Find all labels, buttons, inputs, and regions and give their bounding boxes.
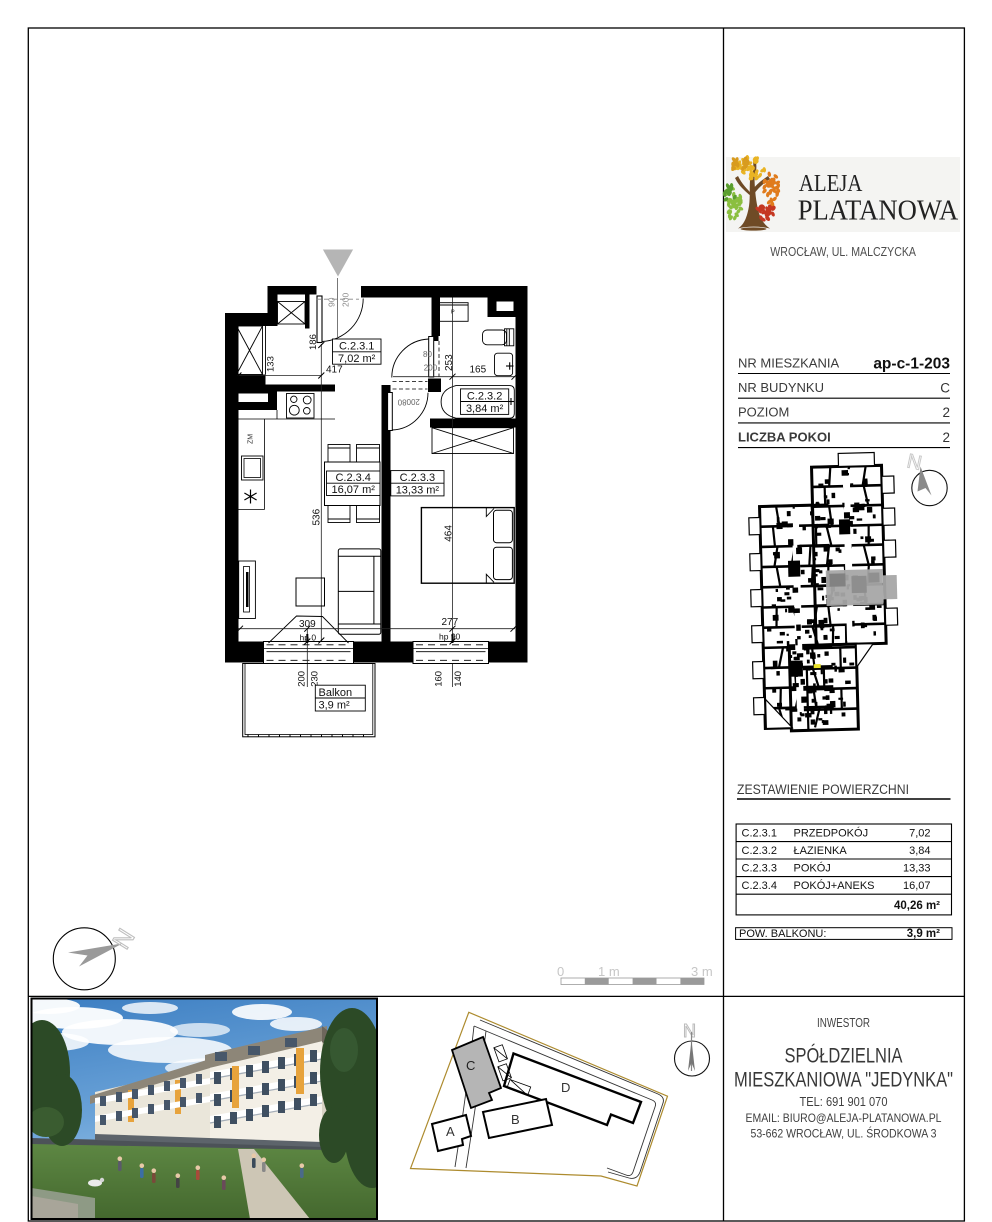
svg-text:A: A	[446, 1124, 455, 1139]
svg-text:C.2.3.2: C.2.3.2	[467, 390, 502, 402]
svg-text:C: C	[466, 1058, 475, 1073]
svg-text:3 m: 3 m	[691, 964, 713, 979]
svg-text:POKÓJ: POKÓJ	[794, 862, 831, 875]
svg-text:NR MIESZKANIA: NR MIESZKANIA	[738, 355, 839, 370]
svg-text:TEL: 691 901 070: TEL: 691 901 070	[800, 1095, 888, 1109]
svg-text:53-662 WROCŁAW, UL. ŚRODKOWA 3: 53-662 WROCŁAW, UL. ŚRODKOWA 3	[751, 1125, 937, 1140]
svg-text:2: 2	[942, 405, 950, 420]
svg-text:C: C	[940, 380, 950, 395]
svg-text:13,33 m²: 13,33 m²	[396, 485, 440, 497]
svg-text:464: 464	[444, 525, 455, 542]
svg-text:C.2.3.3: C.2.3.3	[400, 472, 435, 484]
svg-text:16,07 m²: 16,07 m²	[331, 484, 375, 496]
svg-text:200: 200	[406, 397, 420, 406]
svg-text:EMAIL: BIURO@ALEJA-PLATANOWA.P: EMAIL: BIURO@ALEJA-PLATANOWA.PL	[746, 1111, 942, 1125]
svg-text:PLATANOWA: PLATANOWA	[798, 196, 959, 227]
svg-text:80: 80	[397, 397, 406, 406]
svg-text:P: P	[451, 310, 455, 316]
svg-text:536: 536	[312, 508, 323, 525]
svg-text:7,02: 7,02	[909, 827, 930, 839]
svg-text:ZM: ZM	[248, 434, 255, 444]
svg-text:230: 230	[310, 671, 321, 687]
svg-text:200: 200	[424, 364, 438, 373]
svg-text:WROCŁAW, UL. MALCZYCKA: WROCŁAW, UL. MALCZYCKA	[770, 245, 916, 259]
svg-text:140: 140	[453, 671, 464, 687]
svg-text:C.2.3.1: C.2.3.1	[742, 827, 777, 839]
svg-text:SPÓŁDZIELNIA: SPÓŁDZIELNIA	[785, 1042, 903, 1067]
svg-text:ŁAZIENKA: ŁAZIENKA	[794, 845, 848, 857]
svg-text:160: 160	[433, 671, 444, 687]
svg-text:3,9 m²: 3,9 m²	[319, 699, 351, 711]
svg-text:40,26 m²: 40,26 m²	[894, 900, 940, 912]
svg-text:ap-c-1-203: ap-c-1-203	[873, 355, 950, 372]
svg-text:hp 90: hp 90	[439, 632, 461, 642]
svg-text:3,9 m²: 3,9 m²	[907, 928, 940, 940]
svg-text:C.2.3.4: C.2.3.4	[335, 472, 370, 484]
svg-text:186: 186	[308, 334, 319, 350]
svg-text:200: 200	[297, 671, 308, 687]
svg-text:NR BUDYNKU: NR BUDYNKU	[738, 380, 824, 395]
svg-text:INWESTOR: INWESTOR	[817, 1015, 870, 1030]
svg-text:PRZEDPOKÓJ: PRZEDPOKÓJ	[794, 826, 869, 839]
svg-text:90: 90	[327, 297, 337, 307]
svg-text:3,84: 3,84	[909, 845, 930, 857]
svg-text:133: 133	[266, 356, 277, 372]
svg-text:7,02 m²: 7,02 m²	[338, 353, 376, 365]
svg-text:ZESTAWIENIE POWIERZCHNI: ZESTAWIENIE POWIERZCHNI	[737, 782, 909, 797]
svg-text:ALEJA: ALEJA	[799, 170, 863, 197]
svg-text:3,84 m²: 3,84 m²	[466, 403, 504, 415]
svg-text:0: 0	[557, 964, 564, 979]
svg-text:277: 277	[442, 617, 459, 628]
svg-text:C.2.3.1: C.2.3.1	[339, 341, 374, 353]
svg-text:LICZBA POKOI: LICZBA POKOI	[738, 429, 831, 444]
svg-text:13,33: 13,33	[903, 863, 931, 875]
svg-text:B: B	[511, 1112, 520, 1127]
svg-text:417: 417	[326, 365, 343, 376]
svg-text:253: 253	[444, 354, 455, 371]
svg-text:C.2.3.2: C.2.3.2	[742, 845, 777, 857]
svg-text:POW. BALKONU:: POW. BALKONU:	[739, 928, 826, 940]
svg-text:C.2.3.3: C.2.3.3	[742, 863, 777, 875]
svg-text:309: 309	[299, 619, 316, 630]
svg-text:hp 0: hp 0	[300, 633, 317, 643]
svg-text:POZIOM: POZIOM	[738, 405, 789, 420]
svg-text:1 m: 1 m	[598, 964, 620, 979]
svg-text:Balkon: Balkon	[319, 687, 353, 699]
svg-text:16,07: 16,07	[903, 880, 931, 892]
svg-text:165: 165	[470, 365, 487, 376]
svg-text:80: 80	[423, 350, 432, 359]
svg-text:C.2.3.4: C.2.3.4	[742, 880, 777, 892]
svg-text:200: 200	[341, 293, 351, 307]
svg-text:MIESZKANIOWA "JEDYNKA": MIESZKANIOWA "JEDYNKA"	[734, 1068, 953, 1092]
svg-text:N: N	[683, 1021, 696, 1041]
svg-text:POKÓJ+ANEKS: POKÓJ+ANEKS	[794, 879, 875, 892]
svg-text:2: 2	[942, 430, 950, 445]
svg-text:D: D	[561, 1080, 570, 1095]
